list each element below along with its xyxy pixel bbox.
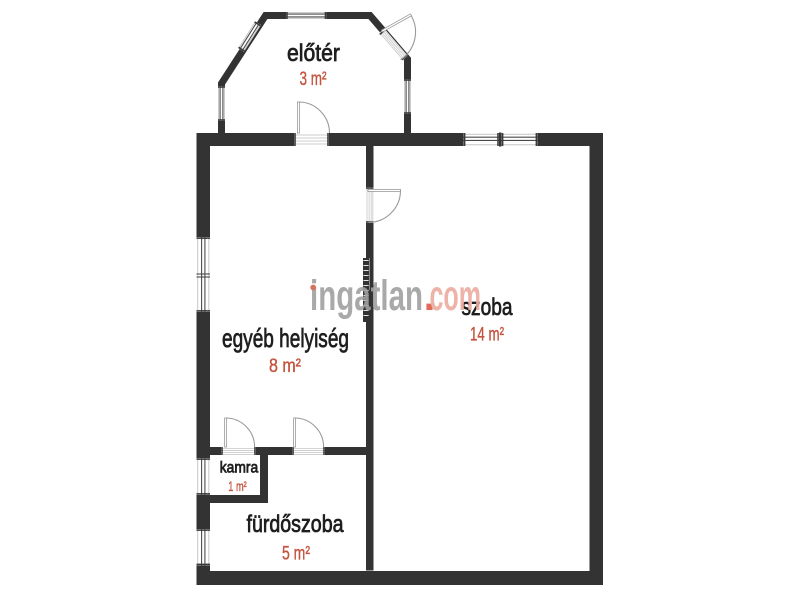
svg-text:14 m²: 14 m²: [470, 325, 504, 346]
svg-text:1 m²: 1 m²: [228, 478, 247, 494]
svg-text:előtér: előtér: [287, 40, 340, 67]
svg-text:ingatlan: ingatlan: [310, 272, 423, 320]
svg-text:3 m²: 3 m²: [300, 69, 327, 90]
svg-text:kamra: kamra: [220, 460, 259, 477]
svg-text:fürdőszoba: fürdőszoba: [247, 511, 345, 538]
svg-text:8 m²: 8 m²: [269, 356, 301, 377]
svg-text:5 m²: 5 m²: [282, 544, 310, 565]
svg-text:com: com: [430, 272, 482, 320]
svg-text:egyéb helyiség: egyéb helyiség: [222, 323, 349, 353]
